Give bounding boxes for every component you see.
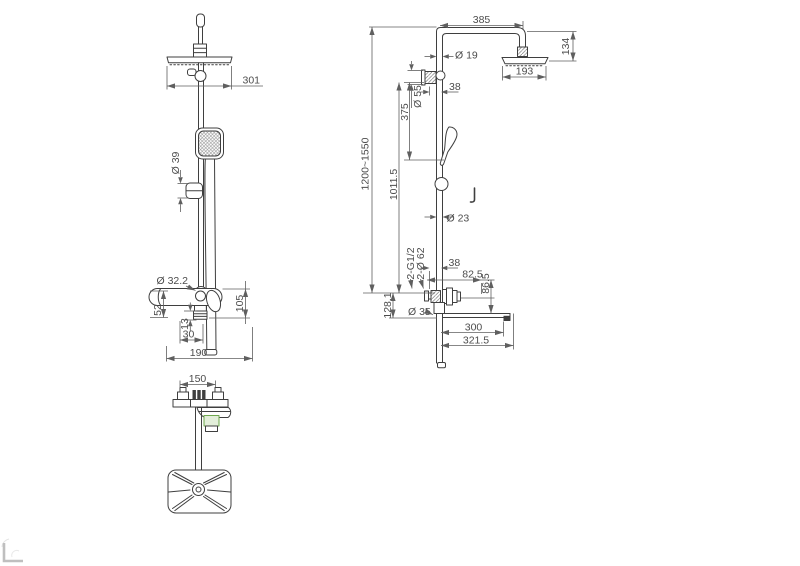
dim-head-width: 301 xyxy=(243,75,261,87)
technical-drawing: 301 Ø 39 Ø 32.2 52 13 xyxy=(0,0,800,566)
front-view: 301 Ø 39 Ø 32.2 52 13 xyxy=(149,14,263,362)
wall-bolt-left xyxy=(178,392,189,400)
top-connector xyxy=(197,14,205,27)
dim-shelf-overall: 321.5 xyxy=(463,335,489,347)
dim-inlet-escutcheon-dia: 2-Ø 62 xyxy=(415,247,427,279)
dim-valve-height: 86.5 xyxy=(480,273,492,294)
dim-spout-offset: 30 xyxy=(183,329,195,341)
dim-body-width: 190 xyxy=(190,347,208,359)
drawing-sheet: 301 Ø 39 Ø 32.2 52 13 xyxy=(0,0,800,566)
dim-spout-height: 105 xyxy=(234,295,246,313)
side-view-shower-column xyxy=(422,28,549,368)
dim-top-width: 150 xyxy=(189,373,207,385)
spout-side xyxy=(434,303,445,314)
dim-rail-dia: Ø 23 xyxy=(447,213,470,225)
dim-body-height: 52 xyxy=(152,304,164,316)
overhead-shower-front xyxy=(167,57,232,63)
spout-aerator-front xyxy=(194,311,208,319)
dim-shelf-length: 300 xyxy=(465,322,483,334)
corner-watermark-icon xyxy=(2,539,23,561)
hook-slider-side xyxy=(435,178,448,191)
dim-head-dia: 193 xyxy=(516,66,534,78)
dim-head-drop: 134 xyxy=(560,38,572,56)
side-view: 385 134 Ø 19 193 Ø 55 xyxy=(360,14,577,368)
aerator-green-window xyxy=(204,416,219,427)
valve-handle-side xyxy=(447,288,453,305)
hook-detail-mark xyxy=(471,188,475,202)
top-view: 150 xyxy=(168,373,231,513)
dim-valve-offset: 38 xyxy=(449,257,461,269)
side-view-dimensions: 385 134 Ø 19 193 Ø 55 xyxy=(360,14,577,350)
head-connector-nut xyxy=(518,47,528,57)
dim-total-height: 1200~1550 xyxy=(360,137,372,190)
dim-handshower-dia: Ø 39 xyxy=(170,151,182,174)
diverter-knob xyxy=(195,71,206,82)
dim-bracket-to-hook: 375 xyxy=(399,103,411,121)
inlet-flange-side xyxy=(425,291,429,301)
dim-arm-length: 385 xyxy=(473,14,491,26)
valve-body-side xyxy=(431,291,441,303)
dim-pipe-dia: Ø 19 xyxy=(455,50,478,62)
dim-bracket-dia: Ø 55 xyxy=(412,85,424,108)
handshower-hose xyxy=(205,159,207,351)
wall-bolt-right xyxy=(213,392,224,400)
top-view-assembly xyxy=(168,388,231,514)
dim-inlet-to-shelf: 128.1 xyxy=(382,292,394,318)
dim-rail-height: 1011.5 xyxy=(388,169,400,200)
dim-bracket-offset: 38 xyxy=(449,81,461,93)
top-view-dimensions: 150 xyxy=(180,373,216,387)
overhead-shower-side xyxy=(502,58,548,64)
upper-bracket-body xyxy=(425,72,436,84)
mounting-crossbar xyxy=(173,400,228,408)
riser-and-arm xyxy=(437,28,526,364)
dim-escutcheon-dia: Ø 32.2 xyxy=(157,275,189,287)
diverter-ring xyxy=(196,291,206,301)
